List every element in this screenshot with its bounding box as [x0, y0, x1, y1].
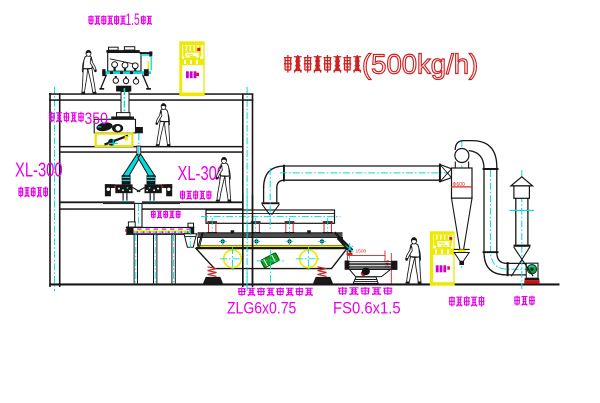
svg-text:XL-300: XL-300 — [15, 158, 63, 181]
svg-text:ZLG6x0.75: ZLG6x0.75 — [227, 299, 296, 317]
svg-text:350: 350 — [84, 110, 107, 128]
svg-text:1.5: 1.5 — [126, 11, 140, 29]
svg-text:FS0.6x1.5: FS0.6x1.5 — [333, 300, 401, 318]
svg-text:1500: 1500 — [356, 248, 367, 254]
svg-text:(500kg/h): (500kg/h) — [362, 49, 478, 80]
svg-text:Φ600: Φ600 — [453, 182, 466, 188]
